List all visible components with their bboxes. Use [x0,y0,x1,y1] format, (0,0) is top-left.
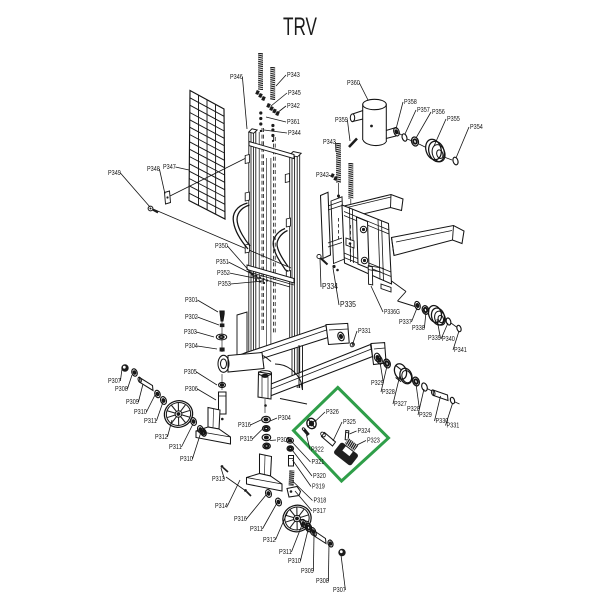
svg-text:P302: P302 [185,312,198,321]
svg-text:P336G: P336G [384,307,400,316]
svg-text:P314: P314 [215,501,228,510]
svg-text:P315: P315 [240,434,253,443]
svg-text:P311: P311 [279,547,292,556]
svg-text:P319: P319 [312,482,325,491]
svg-text:P350: P350 [215,241,228,250]
svg-text:P346: P346 [230,72,243,81]
svg-text:P337: P337 [399,317,412,326]
svg-text:P355: P355 [447,114,460,123]
svg-text:P328: P328 [382,387,395,396]
svg-text:P326: P326 [326,407,339,416]
svg-text:P352: P352 [217,268,230,277]
svg-text:P354: P354 [470,122,483,131]
svg-text:P329: P329 [419,410,432,419]
svg-text:P310: P310 [134,407,147,416]
svg-text:P358: P358 [404,97,417,106]
svg-text:P304: P304 [185,341,198,350]
svg-text:P349: P349 [108,168,121,177]
svg-text:P353: P353 [218,279,231,288]
svg-text:P351: P351 [216,257,229,266]
svg-text:P316: P316 [238,420,251,429]
svg-text:P312: P312 [155,432,168,441]
svg-text:P301: P301 [185,295,198,304]
svg-text:P308: P308 [316,576,329,585]
svg-text:P343: P343 [323,137,336,146]
svg-text:P343: P343 [287,70,300,79]
svg-text:P342: P342 [287,101,300,110]
svg-text:P329: P329 [371,378,384,387]
svg-text:P356: P356 [432,107,445,116]
svg-text:P312: P312 [263,535,276,544]
svg-text:P311: P311 [250,524,263,533]
svg-text:P345: P345 [288,88,301,97]
svg-text:P324: P324 [358,426,371,435]
svg-text:P331: P331 [358,326,371,335]
svg-text:P310: P310 [288,556,301,565]
svg-text:P320: P320 [313,471,326,480]
svg-text:P306: P306 [185,384,198,393]
svg-text:P327: P327 [394,399,407,408]
svg-text:P323: P323 [367,436,380,445]
svg-text:P304: P304 [278,413,291,422]
svg-text:P325: P325 [343,417,356,426]
svg-text:P335: P335 [340,299,356,309]
svg-text:P338: P338 [412,323,425,332]
svg-text:P342: P342 [316,170,329,179]
svg-text:P308: P308 [115,384,128,393]
svg-text:P341: P341 [454,345,467,354]
svg-text:P347: P347 [163,162,176,171]
svg-text:P305: P305 [184,367,197,376]
svg-text:P309: P309 [126,397,139,406]
svg-text:P311: P311 [169,442,182,451]
svg-text:P303: P303 [184,327,197,336]
svg-text:P318: P318 [314,496,327,505]
svg-text:P360: P360 [347,78,360,87]
svg-text:P322: P322 [311,445,324,454]
svg-text:P339: P339 [428,333,441,342]
svg-text:P316: P316 [234,514,247,523]
svg-text:P321: P321 [312,457,325,466]
svg-text:TRV: TRV [283,13,317,41]
svg-text:P305: P305 [277,435,290,444]
svg-text:P317: P317 [313,506,326,515]
svg-text:P311: P311 [144,416,157,425]
svg-text:P307: P307 [333,585,346,594]
svg-text:P344: P344 [288,128,301,137]
svg-text:P309: P309 [301,566,314,575]
svg-text:P310: P310 [180,454,193,463]
svg-text:P361: P361 [287,117,300,126]
svg-text:P334: P334 [322,281,338,291]
svg-text:P340: P340 [442,334,455,343]
svg-text:P328: P328 [407,404,420,413]
svg-text:P357: P357 [417,105,430,114]
svg-text:P348: P348 [147,164,160,173]
svg-text:P359: P359 [335,115,348,124]
svg-text:P331: P331 [447,421,460,430]
